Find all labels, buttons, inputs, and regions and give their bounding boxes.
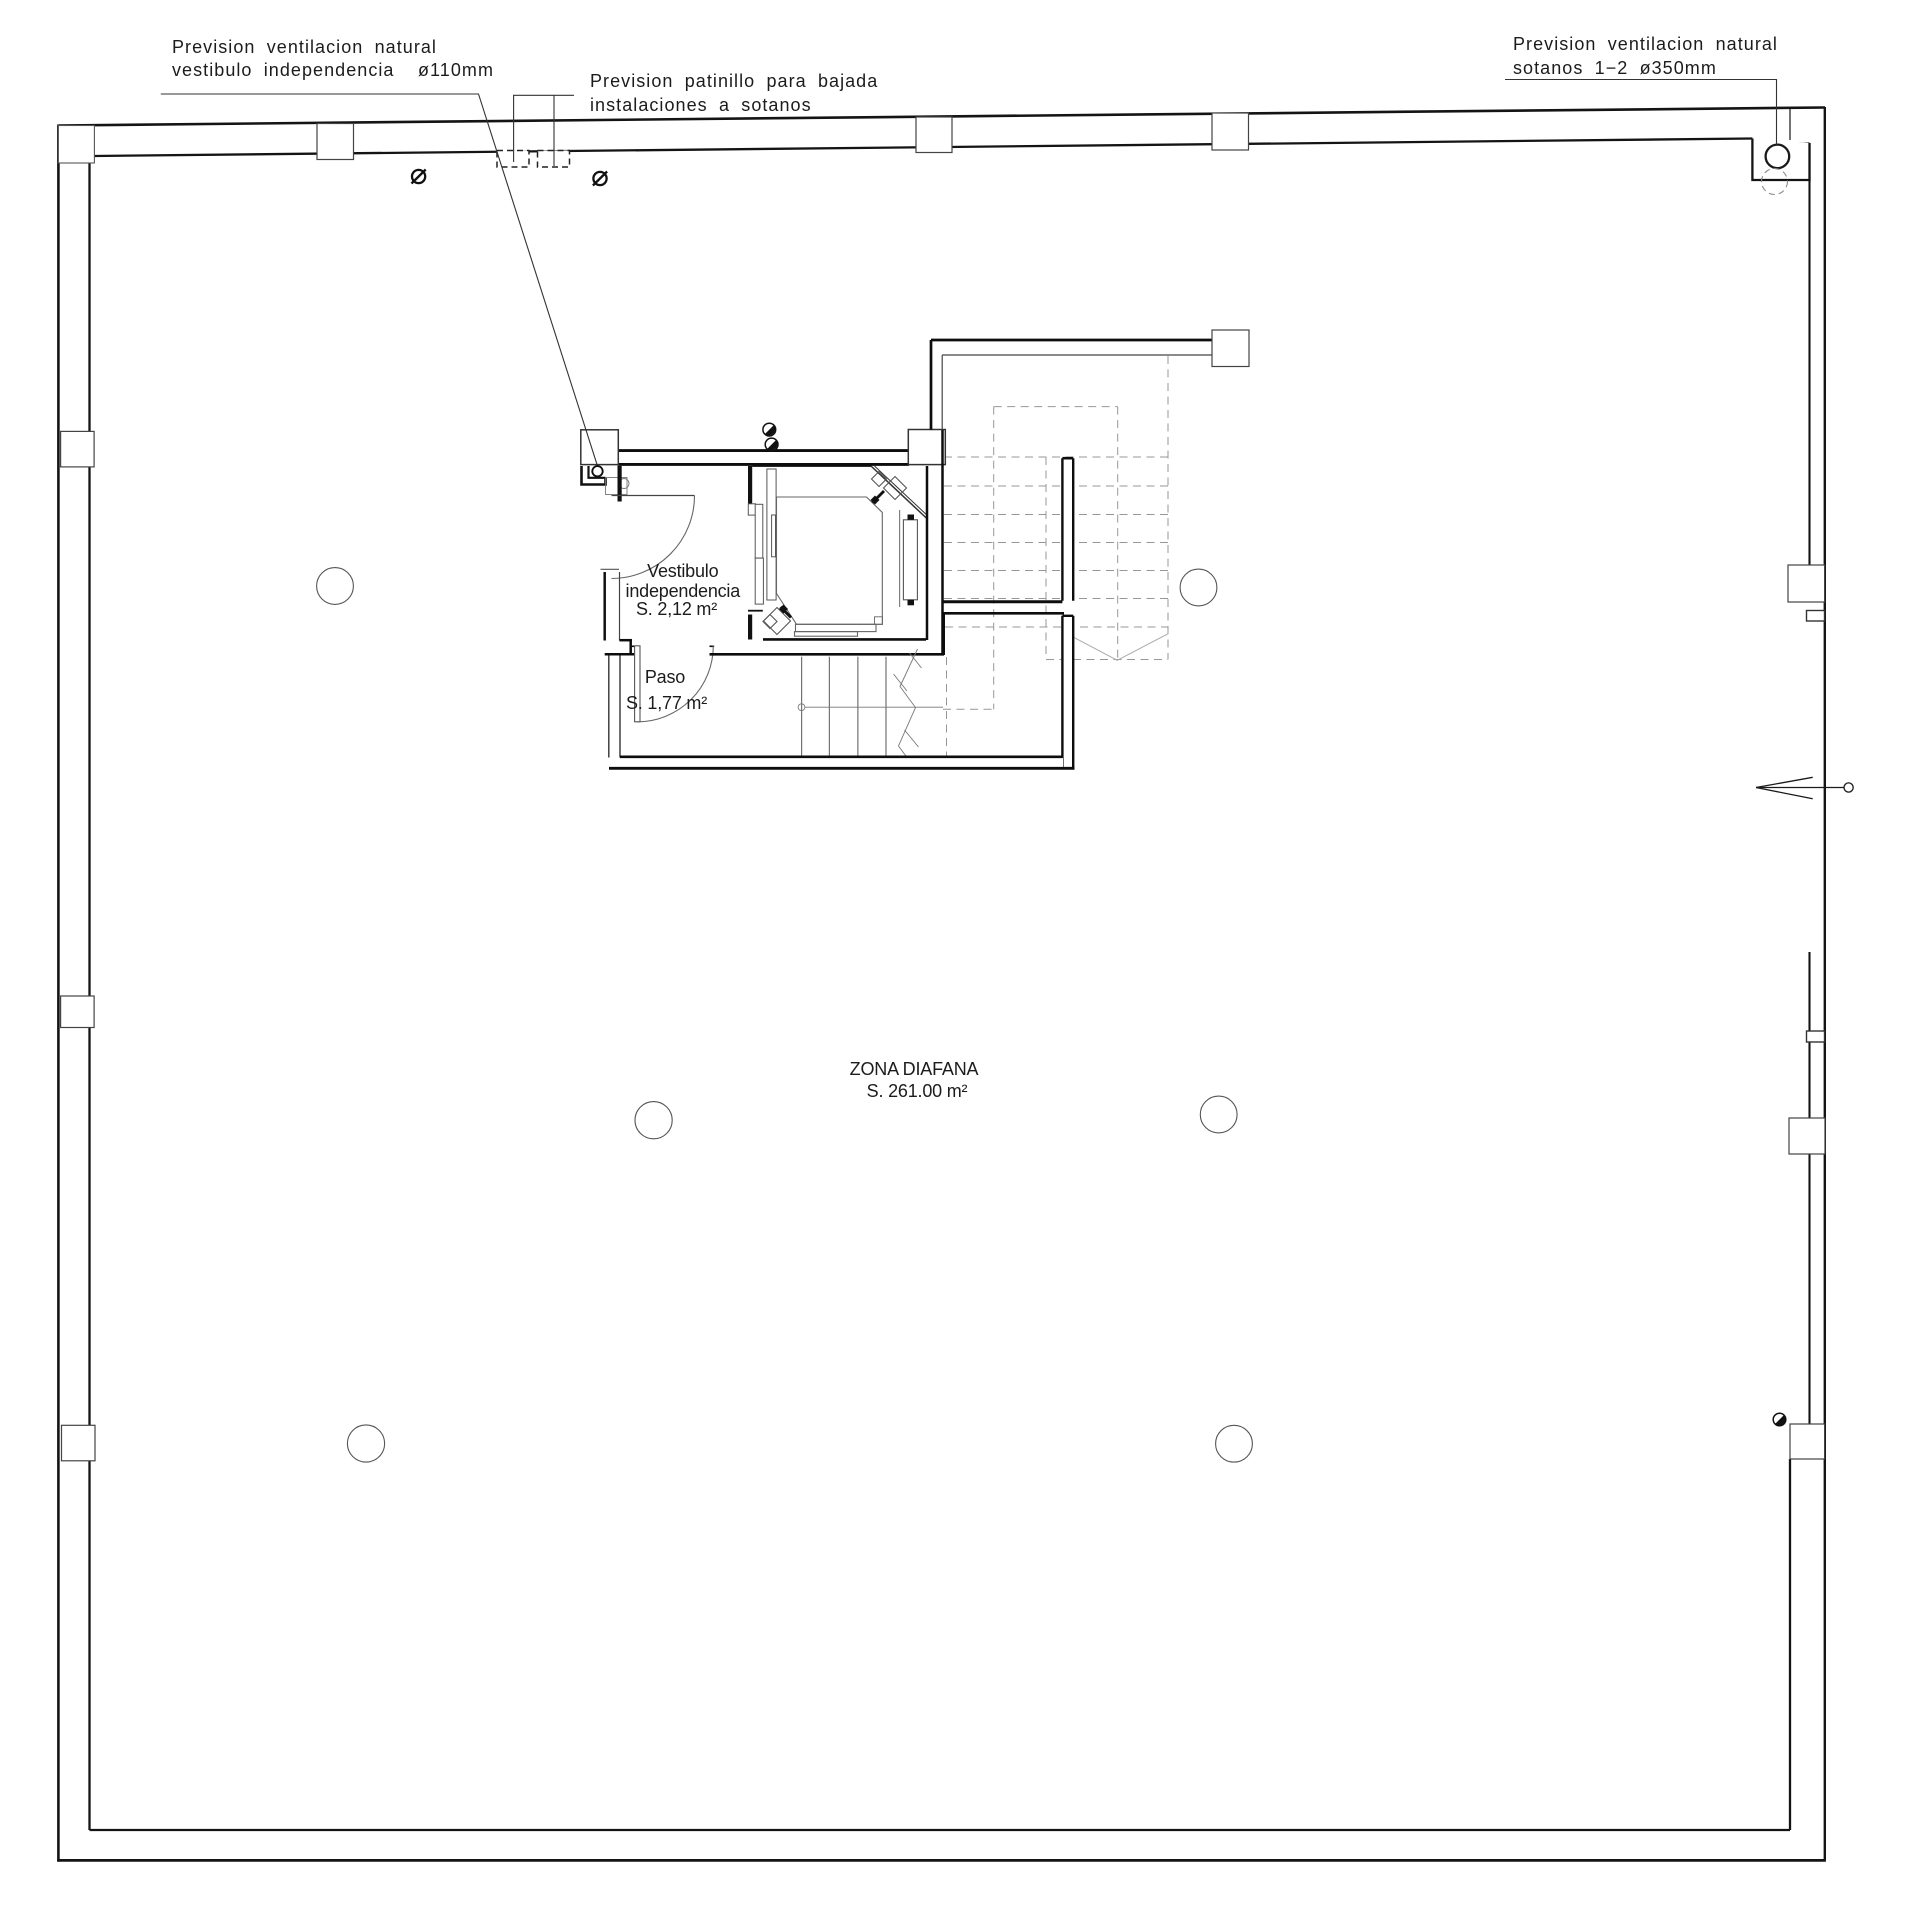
svg-text:Paso: Paso bbox=[645, 667, 685, 687]
svg-text:S. 1,77 m²: S. 1,77 m² bbox=[626, 693, 707, 713]
svg-text:Vestibulo: Vestibulo bbox=[647, 561, 718, 581]
svg-text:independencia: independencia bbox=[626, 581, 742, 601]
svg-text:vestibulo independencia ø110m: vestibulo independencia ø110mm bbox=[172, 60, 494, 80]
svg-text:Prevision ventilacion natural: Prevision ventilacion natural bbox=[172, 37, 437, 57]
svg-text:sotanos 1−2 ø350mm: sotanos 1−2 ø350mm bbox=[1513, 58, 1717, 78]
svg-text:S. 261.00 m²: S. 261.00 m² bbox=[867, 1081, 968, 1101]
svg-text:instalaciones a sotanos: instalaciones a sotanos bbox=[590, 95, 812, 115]
svg-text:S. 2,12 m²: S. 2,12 m² bbox=[636, 599, 717, 619]
svg-text:Prevision patinillo para bajad: Prevision patinillo para bajada bbox=[590, 71, 878, 91]
svg-text:ZONA DIAFANA: ZONA DIAFANA bbox=[850, 1059, 979, 1079]
svg-text:Prevision ventilacion natural: Prevision ventilacion natural bbox=[1513, 34, 1778, 54]
